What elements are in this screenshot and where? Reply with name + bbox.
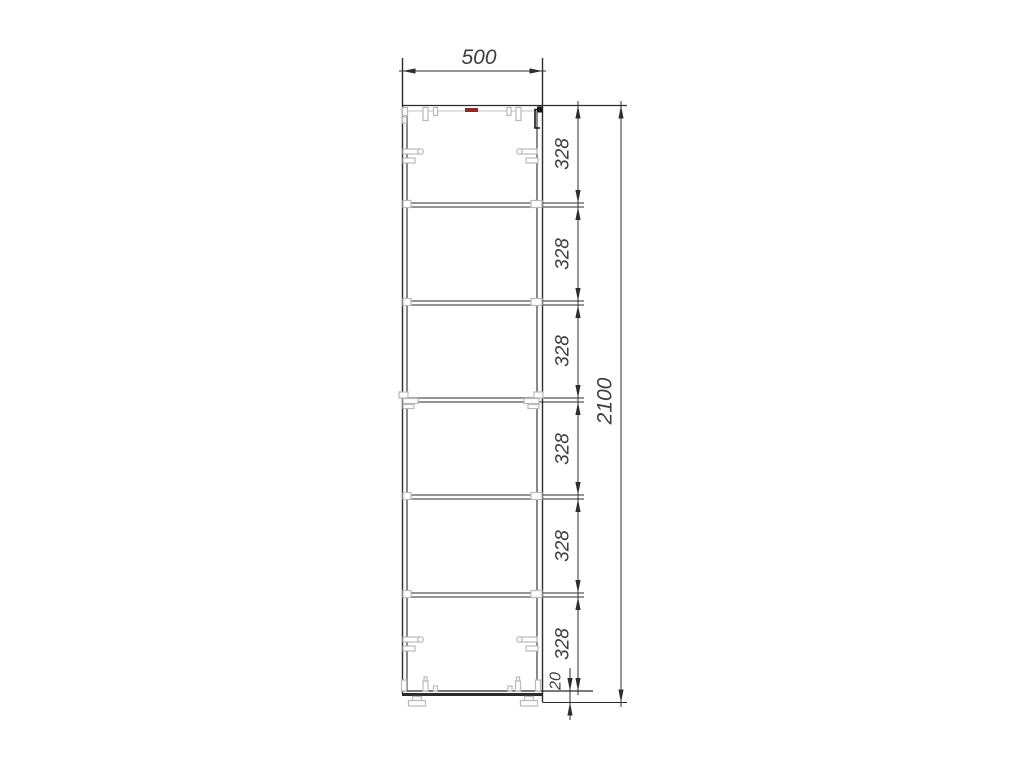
- dimension-width: 500: [399, 46, 546, 74]
- arrowhead-up: [575, 499, 580, 512]
- corner-bracket-top-left-2: [403, 117, 407, 123]
- shelf-connector: [403, 299, 411, 306]
- shelf-pin-icon: [526, 158, 538, 163]
- dowel-icon: [434, 686, 438, 691]
- arrowhead-down: [575, 385, 580, 398]
- arrowhead-left: [403, 68, 416, 73]
- shelf-pin-icon: [517, 149, 523, 155]
- shelf-connector: [403, 591, 411, 598]
- dim-plinth-label: 20: [548, 672, 565, 691]
- foot-left-base: [409, 701, 426, 707]
- technical-drawing: 500 328 328 328 328 328 328 2100: [0, 0, 1024, 768]
- arrowhead-up: [567, 703, 572, 716]
- dimension-plinth: 20: [548, 668, 573, 720]
- shelf-pin-icon: [521, 637, 537, 642]
- hinge-bracket-top-right: [535, 107, 543, 129]
- corner-bracket-bottom-left: [402, 680, 407, 691]
- corner-bracket-bottom-right: [536, 680, 541, 691]
- adjustable-feet: [409, 697, 538, 707]
- dowel-icon: [508, 686, 512, 691]
- shelf-pin-icon: [403, 149, 419, 154]
- shelf-connector: [403, 493, 411, 500]
- dowel-icon: [516, 108, 521, 121]
- dim-section-label-2: 328: [553, 238, 574, 270]
- dowel-icon: [507, 108, 511, 116]
- dim-section-label-5: 328: [553, 530, 574, 562]
- shelf-connector: [403, 399, 418, 404]
- arrowhead-down: [618, 690, 623, 703]
- shelf-connector: [534, 392, 543, 398]
- shelf-4-connectors: [399, 392, 543, 409]
- arrowhead-down: [575, 288, 580, 301]
- dim-section-label-3: 328: [553, 335, 574, 367]
- shelf-pin-icon: [526, 646, 538, 651]
- arrowhead-up: [575, 402, 580, 415]
- dim-width-label: 500: [461, 46, 496, 69]
- dowel-icon: [516, 681, 521, 691]
- shelf-connector: [399, 392, 408, 398]
- shelf-connector: [531, 299, 542, 306]
- shelf-pin-icon: [403, 637, 419, 642]
- red-edge-mark: [465, 108, 478, 112]
- shelf-connector: [403, 405, 414, 409]
- arrowhead-up: [575, 597, 580, 610]
- dimension-overall-height: 2100: [594, 101, 624, 707]
- arrowhead-down: [575, 482, 580, 495]
- shelf-line-3: [406, 398, 584, 402]
- shelf-pin-icon: [521, 149, 537, 154]
- shelf-pin-icon: [403, 158, 415, 163]
- dowel-icon: [423, 108, 428, 121]
- dowel-icon: [423, 681, 428, 691]
- dim-section-label-1: 328: [553, 138, 574, 170]
- dim-overall-height-label: 2100: [594, 377, 617, 425]
- shelf-line-2: [406, 301, 584, 305]
- shelf-line-1: [406, 203, 584, 207]
- dowel-icon: [434, 108, 438, 116]
- arrowhead-down: [575, 190, 580, 203]
- shelf-pins-section-1: [403, 149, 538, 163]
- foot-right-base: [521, 701, 538, 707]
- shelf-connector: [524, 399, 539, 404]
- arrowhead-up: [575, 305, 580, 318]
- shelf-line-5: [406, 593, 584, 597]
- hardware-bottom: [402, 677, 541, 691]
- arrowhead-right: [530, 68, 543, 73]
- arrowhead-up: [575, 106, 580, 119]
- shelf-pin-icon: [418, 637, 424, 643]
- shelf-pin-icon: [517, 637, 523, 643]
- arrowhead-down: [575, 580, 580, 593]
- dim-section-label-6: 328: [553, 628, 574, 660]
- corner-bracket-top-left: [403, 108, 408, 116]
- arrowhead-up: [575, 207, 580, 220]
- shelf-line-4: [406, 495, 584, 499]
- arrowhead-down: [575, 678, 580, 691]
- shelf-connector: [531, 493, 542, 500]
- shelf-end-connectors: [403, 201, 542, 598]
- shelf-connector: [403, 201, 411, 208]
- dim-section-label-4: 328: [553, 433, 574, 465]
- shelf-connector: [528, 405, 539, 409]
- shelf-pins-section-6: [403, 637, 538, 651]
- shelf-pin-icon: [403, 646, 415, 651]
- arrowhead-down: [567, 678, 572, 691]
- shelf-pin-icon: [418, 149, 424, 155]
- arrowhead-up: [618, 106, 623, 119]
- shelf-connector: [531, 591, 542, 598]
- shelf-connector: [531, 201, 542, 208]
- hardware-top: [403, 107, 543, 129]
